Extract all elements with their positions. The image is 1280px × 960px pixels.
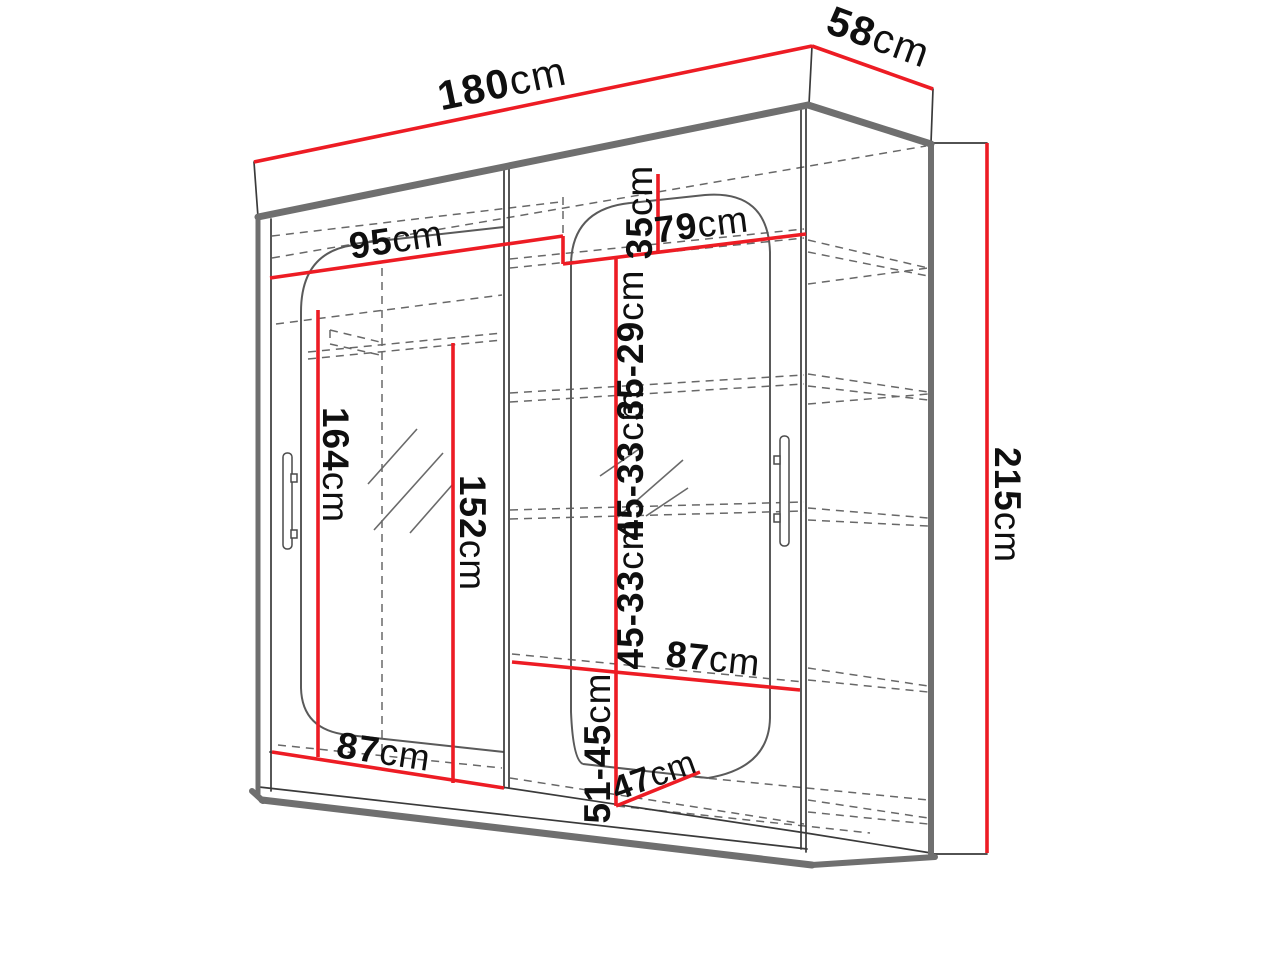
dim-value: 164 [315,407,356,472]
dim-unit: cm [695,198,751,245]
right-door-handle [780,436,789,546]
dim-value: 79 [652,205,700,251]
dim-value: 95 [346,220,395,267]
left-door-handle-mount-top [291,474,297,482]
left-door-handle-mount-bottom [291,530,297,538]
dim-unit: cm [452,540,493,591]
dim-unit: cm [707,638,762,684]
dim-label-compartment-height-3: 45-33cm [610,390,651,541]
dim-value: 87 [334,724,383,771]
dim-label-total-height: 215cm [987,447,1028,563]
dim-unit: cm [619,165,660,216]
dim-value: 45-33 [610,570,651,670]
dim-value: 215 [987,447,1028,512]
dim-label-compartment-height-4: 45-33cm [610,519,651,670]
dim-unit: cm [577,673,618,724]
dim-unit: cm [377,731,434,779]
wardrobe-dimension-diagram: 180cm 58cm 95cm 35cm 79cm 35-29cm 45-33c… [0,0,1280,960]
right-door-handle-mount-top [774,456,780,464]
dim-value: 87 [664,633,711,678]
dim-label-hanging-height-left: 164cm [315,407,356,523]
dim-unit: cm [315,472,356,523]
right-door-handle-mount-bottom [774,514,780,522]
dim-unit: cm [610,519,651,570]
dim-unit: cm [389,213,446,261]
dim-label-hanging-height-right: 152cm [452,475,493,591]
dim-unit: cm [610,270,651,321]
dim-unit: cm [610,390,651,441]
dim-label-compartment-height-bottom: 51-45cm [577,673,618,824]
dim-unit: cm [987,512,1028,563]
dim-value: 152 [452,475,493,540]
